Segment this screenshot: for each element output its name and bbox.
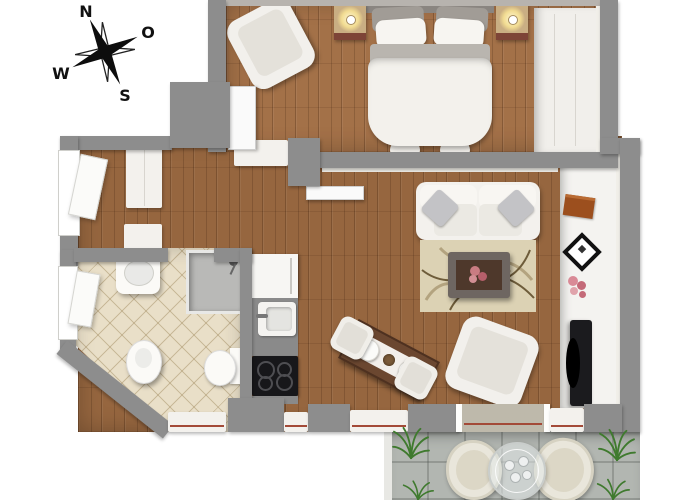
flower-decor xyxy=(478,272,487,281)
picture-art xyxy=(578,245,586,253)
bedroom-wardrobe xyxy=(534,8,596,152)
hall-wardrobe xyxy=(126,146,162,208)
bidet-bowl xyxy=(135,348,152,368)
living-top-wall-face xyxy=(322,168,558,172)
flower-decor-sideboard xyxy=(566,274,592,302)
double-bed xyxy=(366,0,494,164)
bedroom-top-wall xyxy=(208,0,618,6)
bath-top-wall-left xyxy=(74,248,168,262)
bath-kitchen-wall xyxy=(240,248,252,418)
bath-window xyxy=(168,412,226,432)
glass xyxy=(518,456,529,467)
nightstand-left xyxy=(334,4,366,40)
nightstand-right xyxy=(496,4,528,40)
compass-rose-icon: N O S W xyxy=(38,2,170,106)
cooktop xyxy=(252,356,298,396)
kitchen-sink xyxy=(258,302,296,336)
washbasin-bowl xyxy=(124,260,154,286)
glass xyxy=(522,470,532,480)
compass-east-label: O xyxy=(141,23,155,42)
tv-screen xyxy=(566,338,580,388)
hall-living-wall-pillar xyxy=(288,138,320,186)
plant xyxy=(598,428,636,462)
compass-north-label: N xyxy=(79,2,92,21)
nightstand-drawer xyxy=(334,33,366,40)
compass-south-label: S xyxy=(119,86,131,105)
fridge-handle xyxy=(290,258,292,294)
living-right-wall xyxy=(620,138,640,432)
nightstand-drawer xyxy=(496,33,528,40)
plant xyxy=(392,426,430,460)
terrace-table xyxy=(488,442,546,500)
coffee-table xyxy=(448,252,510,298)
bedside-lamp-left xyxy=(346,15,356,25)
burner xyxy=(258,376,273,391)
terrace-curb xyxy=(384,430,392,500)
living-window-right xyxy=(550,408,584,432)
book xyxy=(563,194,596,219)
interior-door-open xyxy=(306,186,364,200)
bedside-lamp-right xyxy=(508,15,518,25)
bedroom-bottom-wall xyxy=(298,152,618,168)
bidet xyxy=(126,340,162,384)
bottom-wall-segment xyxy=(308,404,350,432)
bedroom-right-wall xyxy=(600,0,618,154)
compass-west-label: W xyxy=(52,64,70,83)
glass xyxy=(504,460,515,471)
tv xyxy=(570,320,592,406)
kitchen-window xyxy=(284,412,308,432)
burner xyxy=(276,374,293,391)
terrace-glass-door xyxy=(462,404,544,432)
toilet xyxy=(204,350,236,386)
bottom-wall-pillar xyxy=(228,398,284,432)
sofa xyxy=(416,182,540,240)
plant xyxy=(402,480,434,500)
faucet xyxy=(256,314,268,318)
glass xyxy=(510,472,521,483)
entry-door-open xyxy=(228,86,256,150)
sink-basin xyxy=(266,307,292,331)
fridge xyxy=(252,254,298,298)
flower-decor xyxy=(469,275,477,283)
bed-duvet xyxy=(368,58,492,146)
floor-plan-canvas: N O S W xyxy=(0,0,700,500)
entry-vestibule-wall xyxy=(170,82,230,148)
plant xyxy=(596,478,630,500)
